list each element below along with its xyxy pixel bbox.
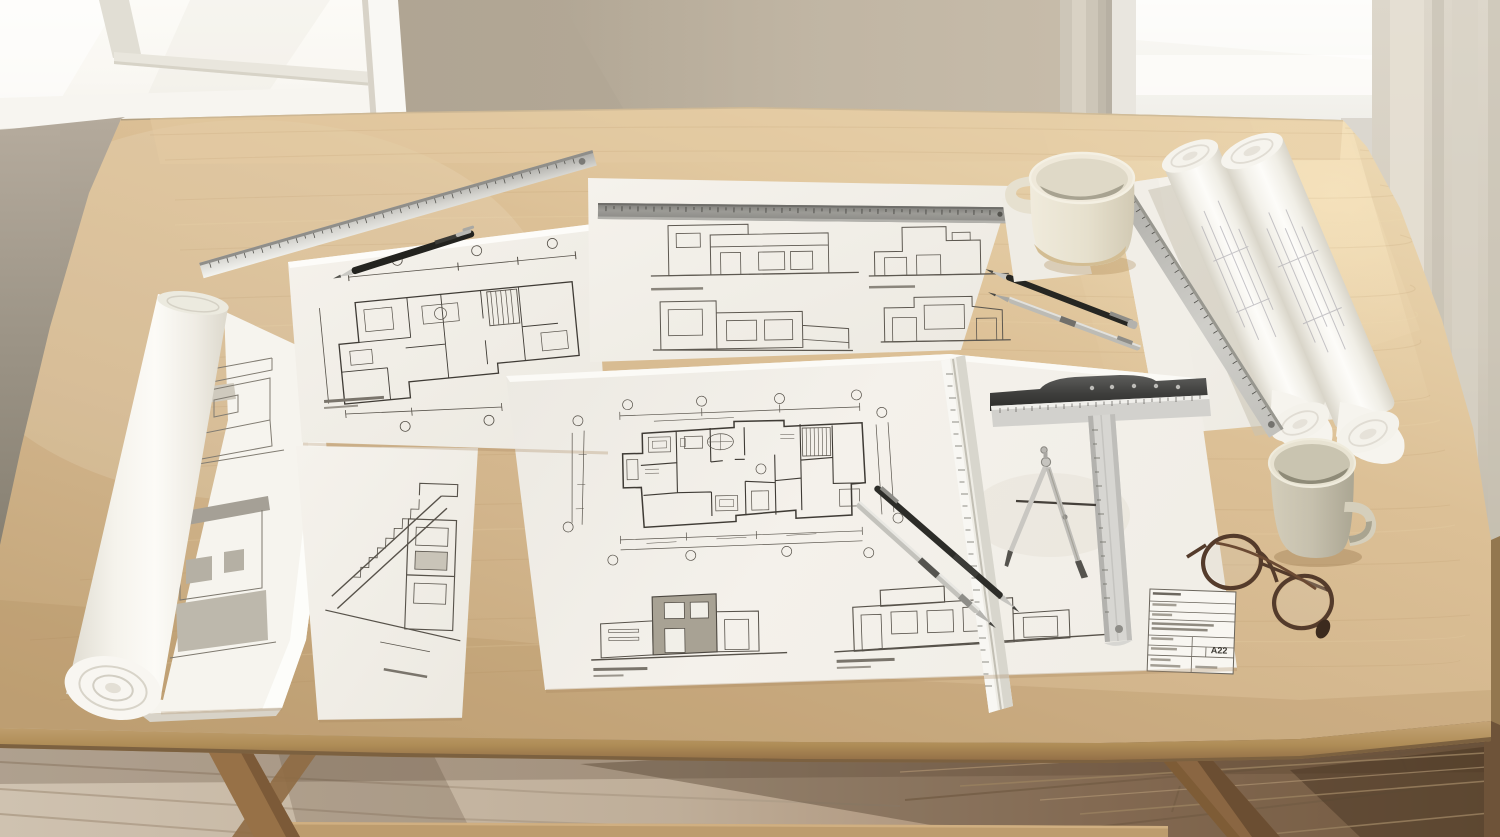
svg-text:A22: A22 bbox=[1211, 645, 1228, 656]
